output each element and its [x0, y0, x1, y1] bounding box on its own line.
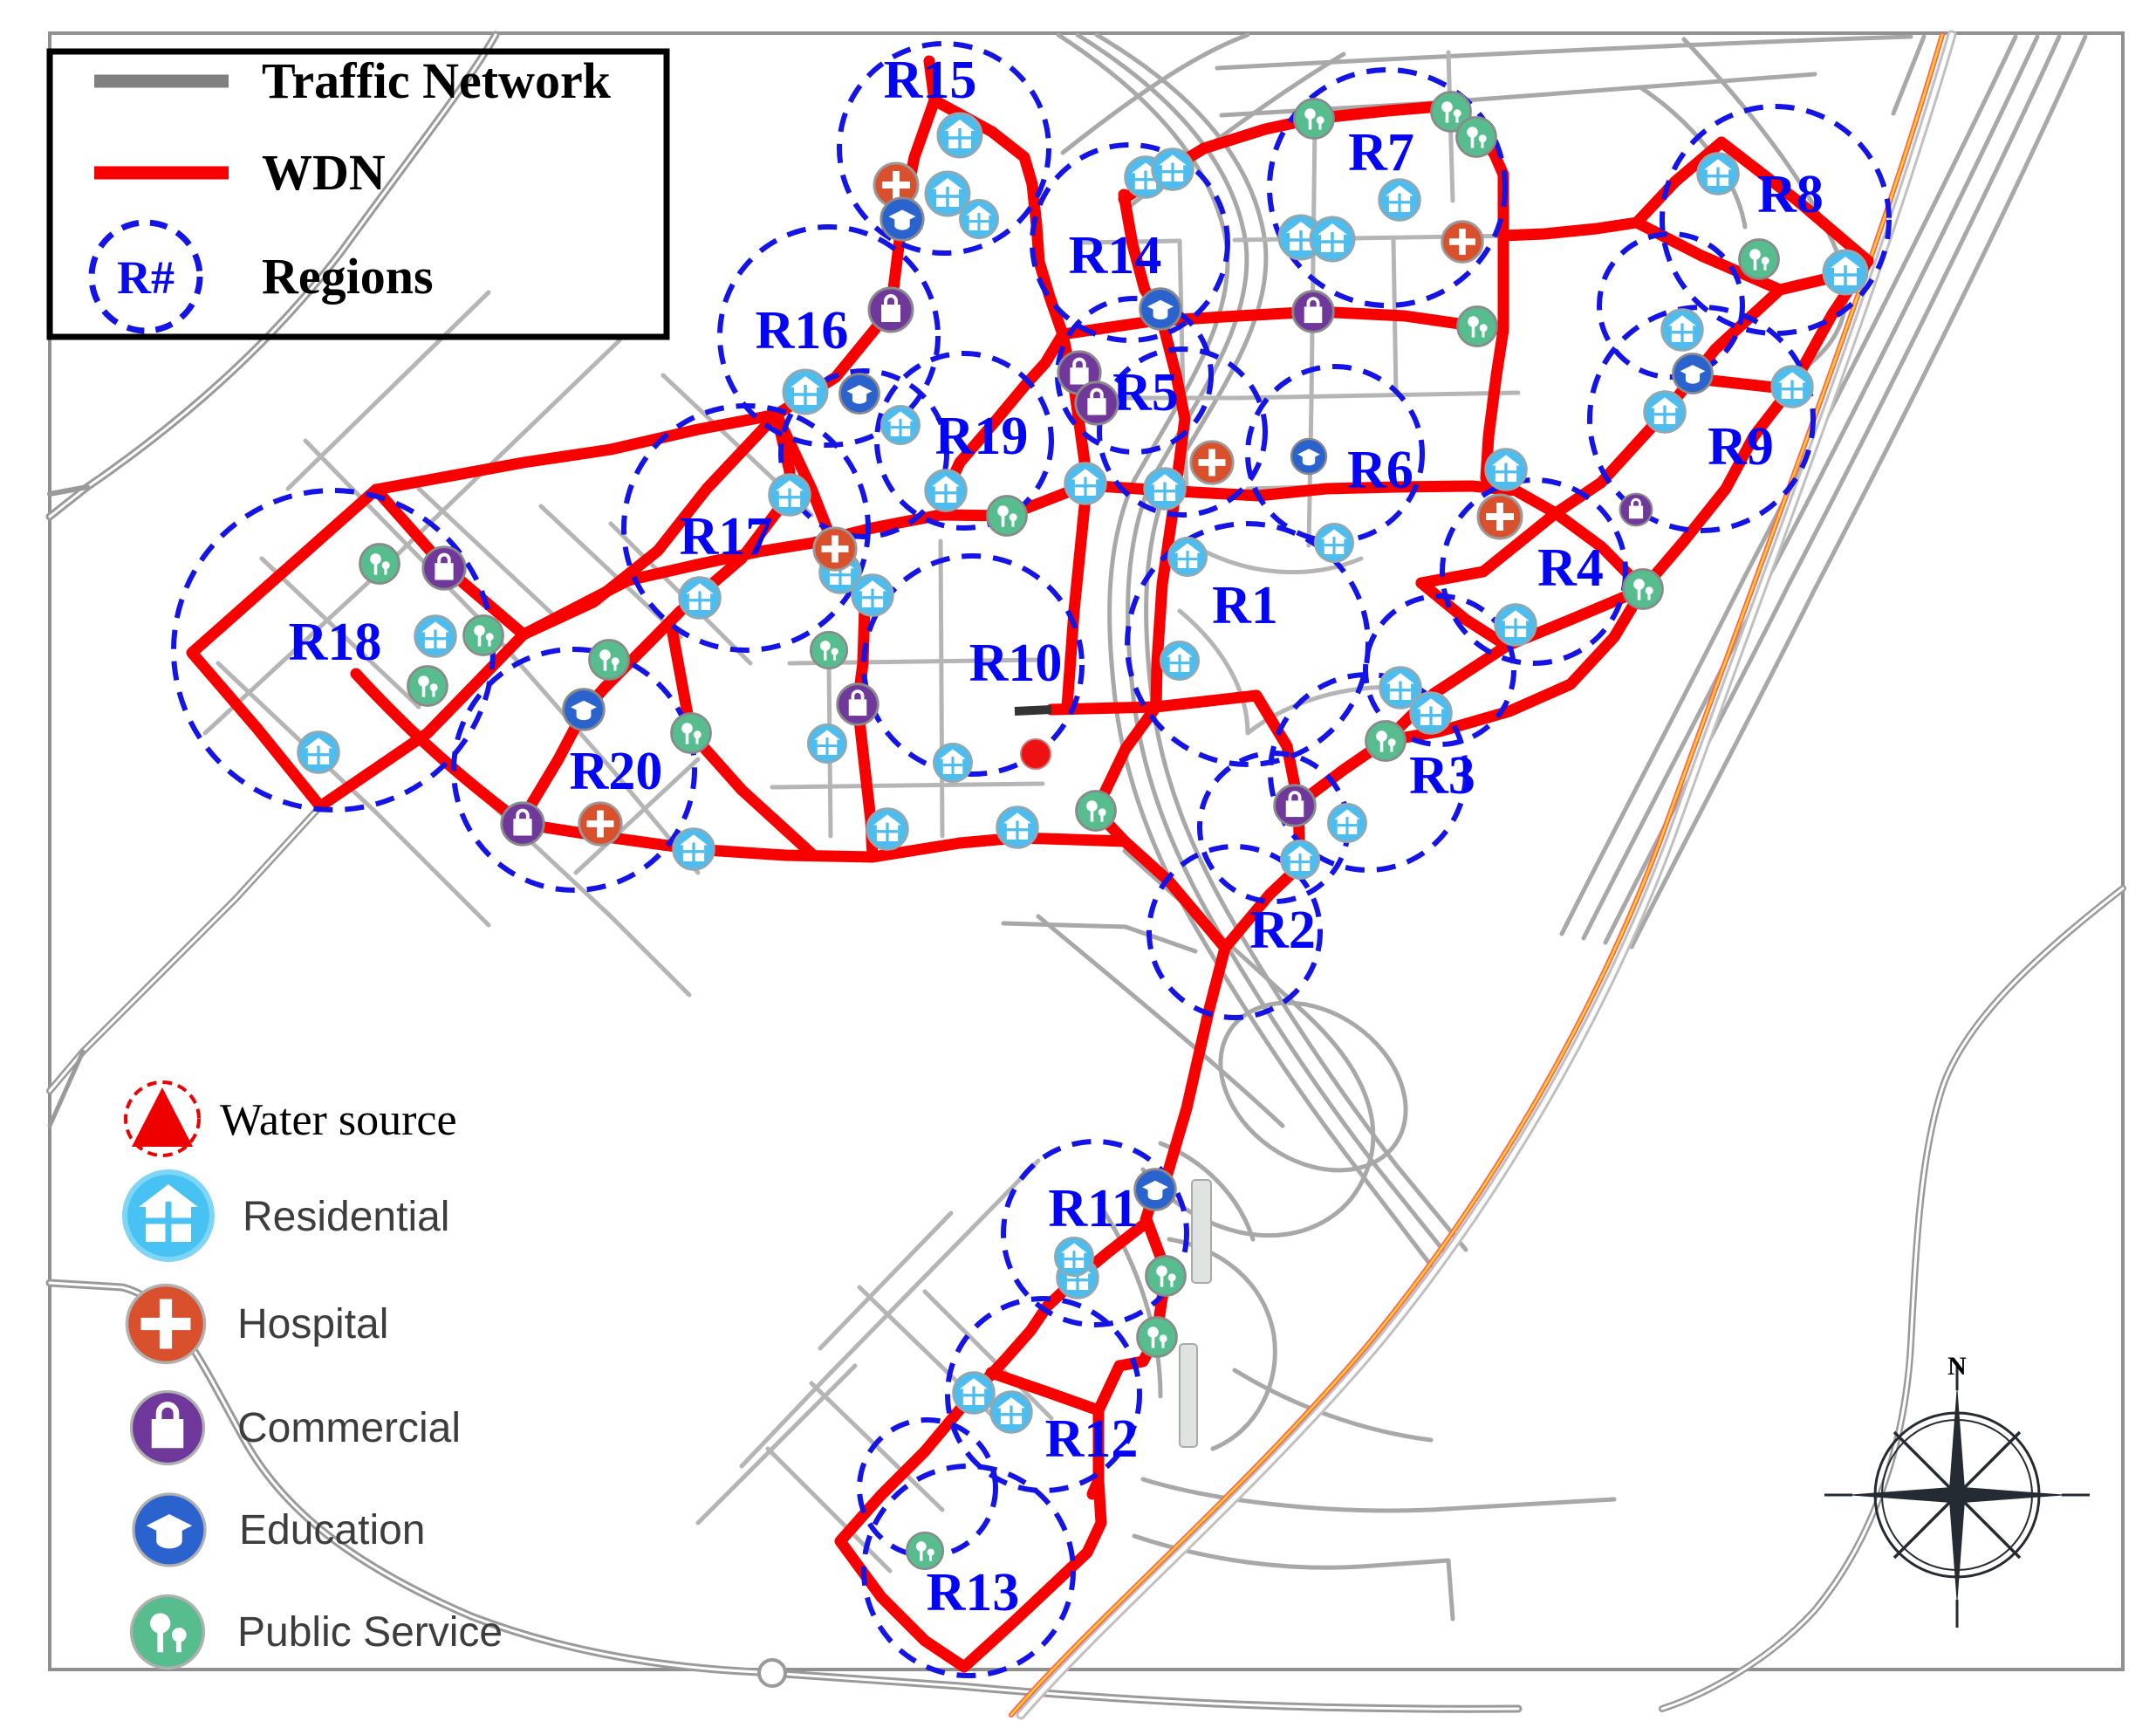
svg-text:R13: R13 — [927, 1563, 1020, 1622]
svg-text:Regions: Regions — [262, 248, 434, 305]
svg-text:R16: R16 — [756, 301, 849, 360]
svg-text:R12: R12 — [1045, 1409, 1139, 1469]
svg-text:R19: R19 — [935, 407, 1029, 466]
svg-text:Commercial: Commercial — [237, 1405, 461, 1451]
svg-text:R15: R15 — [884, 51, 977, 110]
svg-text:R3: R3 — [1409, 746, 1475, 806]
svg-text:R9: R9 — [1708, 417, 1774, 477]
svg-text:Hospital: Hospital — [237, 1301, 388, 1347]
svg-text:R10: R10 — [969, 634, 1063, 693]
svg-text:WDN: WDN — [262, 144, 386, 201]
svg-text:R17: R17 — [680, 507, 773, 566]
svg-text:Traffic Network: Traffic Network — [262, 52, 612, 109]
svg-text:R2: R2 — [1249, 901, 1316, 960]
svg-text:Residential: Residential — [243, 1194, 449, 1240]
svg-text:R8: R8 — [1757, 165, 1824, 224]
svg-text:R5: R5 — [1112, 363, 1179, 422]
svg-text:R1: R1 — [1212, 576, 1278, 635]
svg-text:R11: R11 — [1048, 1179, 1138, 1238]
svg-text:R#: R# — [117, 251, 175, 304]
svg-text:Public Service: Public Service — [237, 1609, 503, 1656]
svg-text:R14: R14 — [1069, 226, 1162, 285]
svg-text:R20: R20 — [570, 742, 663, 801]
svg-text:Education: Education — [239, 1507, 426, 1553]
svg-text:R4: R4 — [1537, 538, 1604, 598]
svg-text:R6: R6 — [1347, 441, 1413, 500]
svg-text:R7: R7 — [1348, 123, 1414, 182]
svg-text:R18: R18 — [289, 613, 382, 672]
svg-text:Water source: Water source — [220, 1095, 457, 1145]
svg-text:N: N — [1947, 1352, 1967, 1381]
